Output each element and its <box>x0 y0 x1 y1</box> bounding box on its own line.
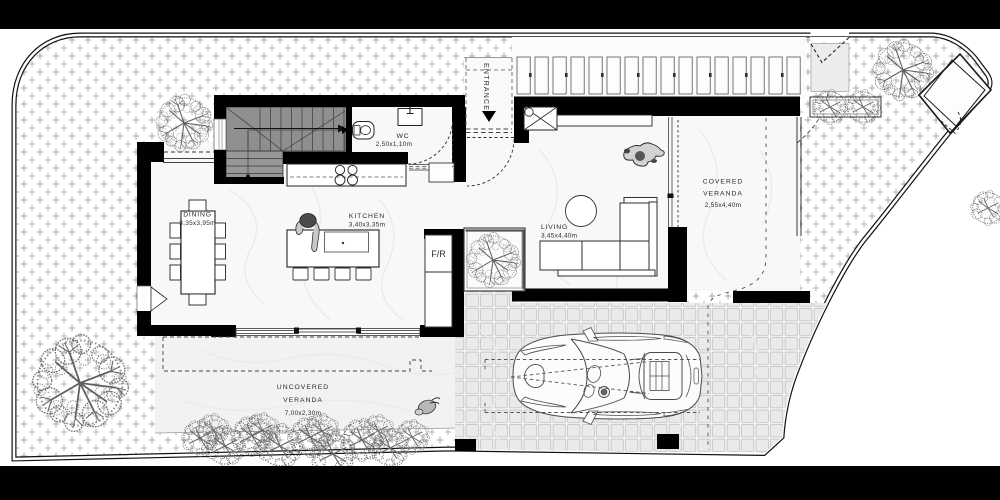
svg-text:UNCOVERED: UNCOVERED <box>277 384 329 391</box>
svg-text:COVERED: COVERED <box>703 179 744 186</box>
svg-text:LIVING: LIVING <box>541 224 568 231</box>
svg-text:3,35x3,95m: 3,35x3,95m <box>179 220 215 227</box>
svg-text:3,45x4,40m: 3,45x4,40m <box>541 233 577 240</box>
svg-text:2,50x1,10m: 2,50x1,10m <box>376 141 412 148</box>
svg-text:DINING: DINING <box>183 212 212 219</box>
svg-text:KITCHEN: KITCHEN <box>349 213 385 220</box>
svg-text:3,40x3,35m: 3,40x3,35m <box>349 222 385 229</box>
svg-text:VERANDA: VERANDA <box>703 191 743 198</box>
svg-text:7,00x2,30m: 7,00x2,30m <box>285 410 321 417</box>
svg-text:ENTRANCE: ENTRANCE <box>482 63 489 111</box>
svg-text:VERANDA: VERANDA <box>283 397 323 404</box>
svg-text:F/R: F/R <box>431 249 446 259</box>
svg-text:WC: WC <box>397 133 410 140</box>
svg-text:2,55x4,40m: 2,55x4,40m <box>705 202 741 209</box>
